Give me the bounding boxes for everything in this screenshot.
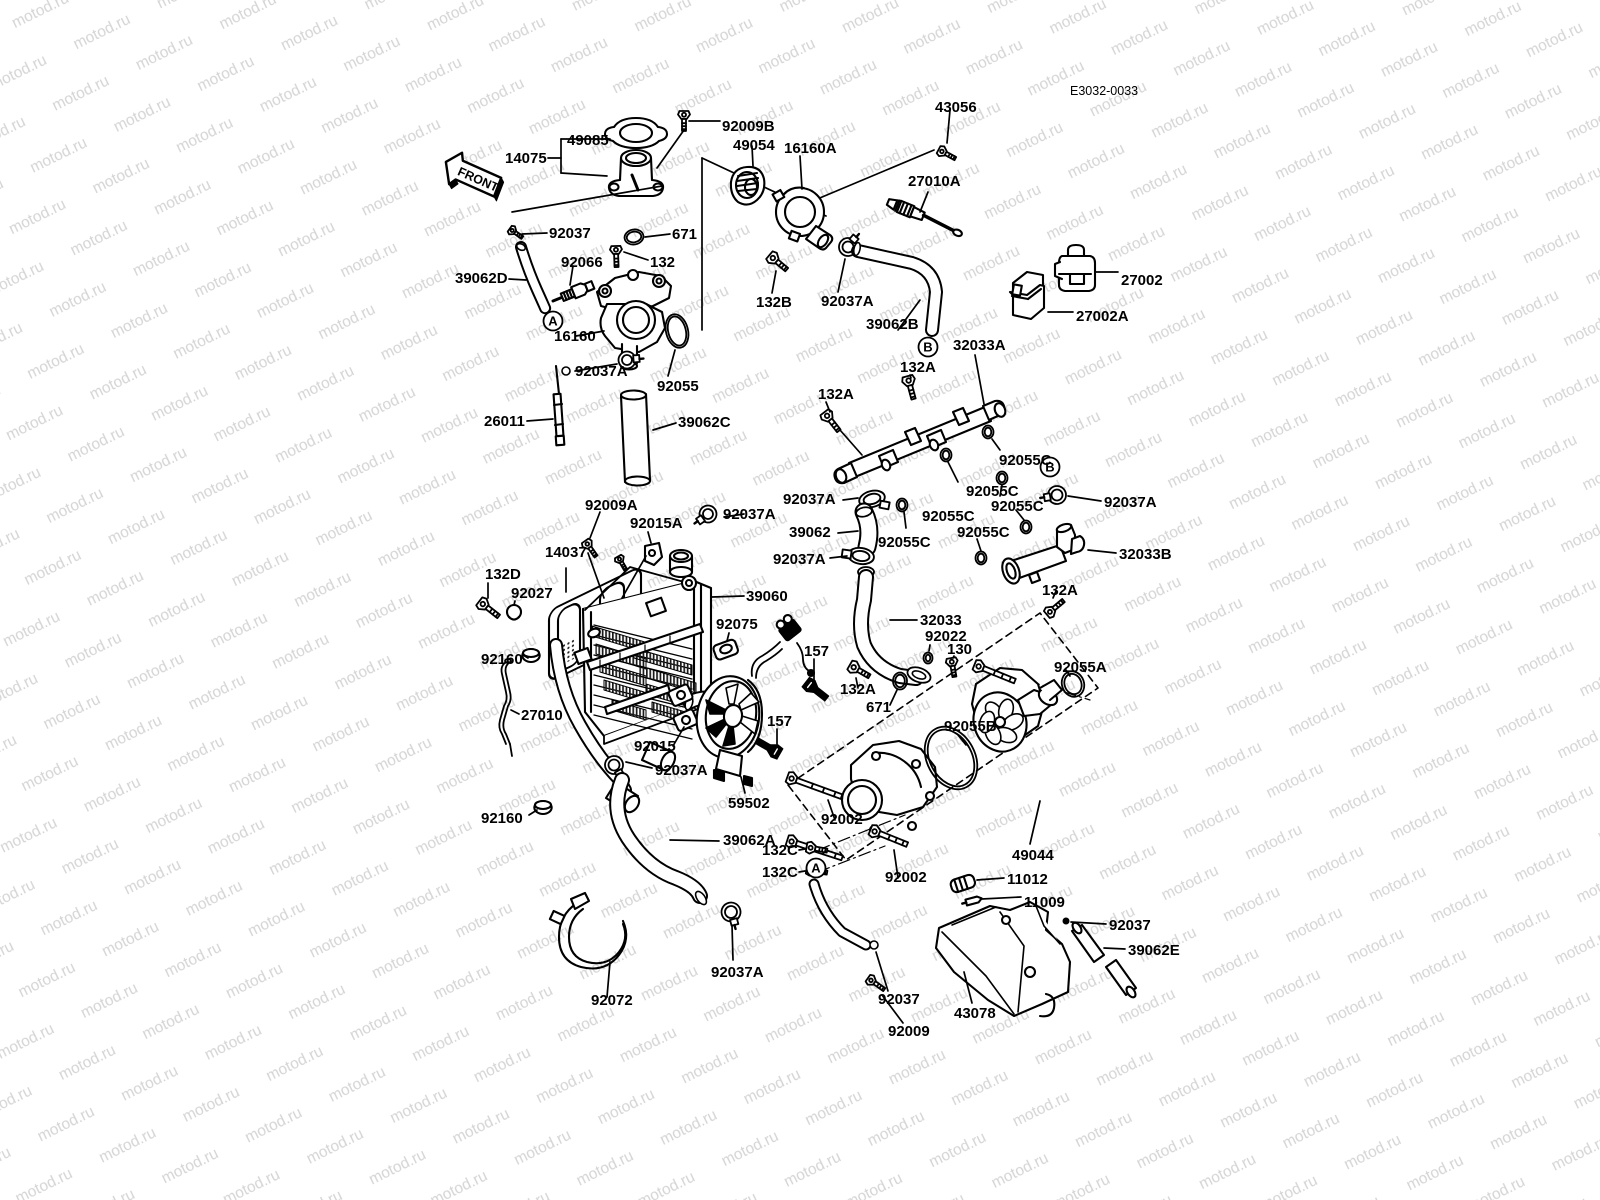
svg-text:92037: 92037 — [549, 225, 591, 242]
svg-text:92055C: 92055C — [957, 524, 1010, 541]
svg-text:157: 157 — [804, 643, 829, 660]
svg-text:92015: 92015 — [634, 738, 676, 755]
svg-text:92055C: 92055C — [922, 508, 975, 525]
svg-text:92055: 92055 — [657, 378, 699, 395]
svg-text:132D: 132D — [485, 566, 521, 583]
svg-text:27010: 27010 — [521, 707, 563, 724]
svg-text:92037A: 92037A — [1104, 494, 1157, 511]
svg-text:132C: 132C — [762, 842, 798, 859]
svg-text:92037A: 92037A — [655, 762, 708, 779]
svg-text:A: A — [811, 861, 821, 876]
svg-text:27002: 27002 — [1121, 272, 1163, 289]
svg-text:92037A: 92037A — [711, 964, 764, 981]
svg-text:39060: 39060 — [746, 588, 788, 605]
svg-text:59502: 59502 — [728, 795, 770, 812]
svg-text:92055C: 92055C — [991, 498, 1044, 515]
svg-text:14037: 14037 — [545, 544, 587, 561]
svg-text:92002: 92002 — [885, 869, 927, 886]
svg-text:32033: 32033 — [920, 612, 962, 629]
svg-text:92002: 92002 — [821, 811, 863, 828]
svg-text:49085: 49085 — [567, 132, 609, 149]
svg-text:39062: 39062 — [789, 524, 831, 541]
svg-text:14075: 14075 — [505, 150, 547, 167]
svg-text:39062D: 39062D — [455, 270, 508, 287]
svg-text:27010A: 27010A — [908, 173, 961, 190]
svg-text:157: 157 — [767, 713, 792, 730]
svg-text:E3032-0033: E3032-0033 — [1070, 84, 1138, 98]
svg-text:92009A: 92009A — [585, 497, 638, 514]
svg-text:92009: 92009 — [888, 1023, 930, 1040]
svg-text:92037A: 92037A — [821, 293, 874, 310]
svg-text:39062B: 39062B — [866, 316, 919, 333]
svg-text:A: A — [548, 314, 558, 329]
svg-text:132A: 132A — [900, 359, 936, 376]
svg-text:32033B: 32033B — [1119, 546, 1172, 563]
svg-text:49054: 49054 — [733, 137, 775, 154]
svg-text:92160: 92160 — [481, 810, 523, 827]
svg-text:92055A: 92055A — [1054, 659, 1107, 676]
svg-text:132B: 132B — [756, 294, 792, 311]
svg-text:92009B: 92009B — [722, 118, 775, 135]
svg-text:92072: 92072 — [591, 992, 633, 1009]
svg-text:92037: 92037 — [1109, 917, 1151, 934]
svg-text:671: 671 — [672, 226, 697, 243]
svg-text:92037: 92037 — [878, 991, 920, 1008]
svg-text:16160A: 16160A — [784, 140, 837, 157]
svg-text:92066: 92066 — [561, 254, 603, 271]
svg-text:32033A: 32033A — [953, 337, 1006, 354]
svg-text:132A: 132A — [840, 681, 876, 698]
svg-text:27002A: 27002A — [1076, 308, 1129, 325]
svg-text:132C: 132C — [762, 864, 798, 881]
svg-text:92037A: 92037A — [773, 551, 826, 568]
svg-text:92037A: 92037A — [783, 491, 836, 508]
svg-text:11009: 11009 — [1024, 894, 1065, 911]
svg-text:92055B: 92055B — [944, 718, 997, 735]
svg-text:43078: 43078 — [954, 1005, 996, 1022]
svg-text:92037A: 92037A — [575, 363, 628, 380]
svg-text:92015A: 92015A — [630, 515, 683, 532]
svg-text:92037A: 92037A — [723, 506, 776, 523]
svg-text:49044: 49044 — [1012, 847, 1054, 864]
svg-text:92027: 92027 — [511, 585, 553, 602]
svg-text:92075: 92075 — [716, 616, 758, 633]
svg-text:11012: 11012 — [1007, 871, 1048, 888]
svg-text:92160: 92160 — [481, 651, 523, 668]
svg-text:132A: 132A — [818, 386, 854, 403]
svg-text:26011: 26011 — [484, 413, 525, 430]
svg-text:16160: 16160 — [554, 328, 596, 345]
svg-text:92055C: 92055C — [999, 452, 1052, 469]
svg-text:671: 671 — [866, 699, 891, 716]
svg-text:43056: 43056 — [935, 99, 977, 116]
svg-text:92055C: 92055C — [878, 534, 931, 551]
svg-text:132A: 132A — [1042, 582, 1078, 599]
svg-text:39062E: 39062E — [1128, 942, 1180, 959]
svg-text:130: 130 — [947, 641, 972, 658]
svg-text:132: 132 — [650, 254, 675, 271]
svg-text:39062C: 39062C — [678, 414, 731, 431]
svg-text:B: B — [923, 340, 932, 355]
